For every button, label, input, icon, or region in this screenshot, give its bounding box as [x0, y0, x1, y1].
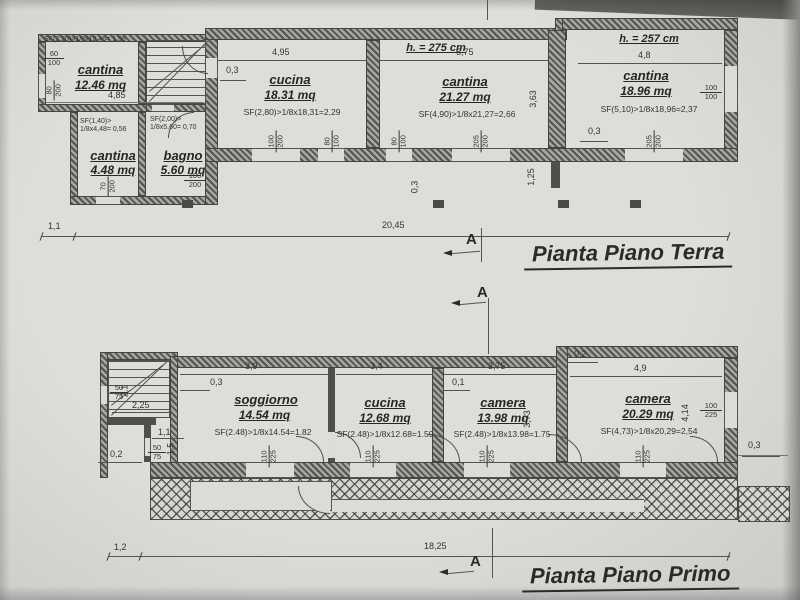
photo-edge-left [0, 0, 10, 600]
section-arrowhead [439, 569, 448, 575]
dim-line [180, 390, 210, 391]
dim-line [580, 141, 608, 142]
dim-line [152, 438, 184, 439]
dim-hall-width: 1,1 [158, 427, 171, 437]
room-area: 14.54 mq [212, 408, 317, 422]
room-formula: SF(5,10)>1/8x18,96=2,37 [588, 104, 710, 114]
room-label: cantina [415, 74, 515, 89]
room-area: 12.68 mq [340, 411, 430, 425]
door-arc [690, 436, 718, 462]
room-area: 5.60 mq [150, 163, 216, 177]
window-opening [724, 66, 738, 112]
dim-line [220, 80, 246, 81]
boundary-post [182, 200, 193, 208]
wall [548, 30, 566, 148]
dim-annex-width: 4,85 [108, 90, 126, 100]
door-arc [296, 436, 324, 462]
dim-camera-r-depth: 4,14 [680, 404, 690, 422]
room-label: soggiorno [212, 392, 320, 407]
room-area: 4.48 mq [82, 163, 144, 177]
room-formula: SF(2,80)>1/8x18,31=2,29 [228, 107, 356, 117]
dim-line [578, 63, 722, 64]
window-marker: 80200 [46, 80, 63, 100]
dim-soggiorno-width: 3,9 [245, 361, 258, 371]
wall [108, 418, 156, 425]
dim-cucina-width: 3,4 [370, 361, 383, 371]
room-area: 18.31 mq [240, 88, 340, 102]
dim-cantina-m-width: 5,75 [456, 47, 474, 57]
section-label: A [466, 231, 477, 248]
room-formula: SF(4,73)>1/8x20,29=2,54 [588, 426, 710, 436]
wall [366, 40, 380, 148]
room-height-note: h. = 257 cm [606, 33, 692, 45]
room-label: camera [458, 395, 548, 410]
dim-wall-drop: 1,25 [526, 168, 536, 186]
dim-cucina-offset: 0,3 [226, 65, 239, 75]
dim-camera-m-depth: 3,73 [522, 410, 532, 428]
room-area: 21.27 mq [415, 90, 515, 104]
wall [170, 356, 178, 478]
room-label: cantina [596, 68, 696, 83]
wall [100, 352, 108, 478]
section-line-top [487, 0, 488, 20]
boundary-post [558, 200, 569, 208]
window-marker: 5075 [110, 384, 128, 401]
dim-camera-r-offset: 0,2 [574, 349, 587, 359]
dim-line [742, 456, 780, 457]
room-formula: SF(2.48)>1/8x14.54=1.82 [200, 427, 326, 437]
window-marker: 80100 [324, 130, 341, 152]
room-formula: SF(2,20)>1/8x12,46= 1,56 [44, 36, 144, 44]
window-marker: 205200 [473, 130, 490, 152]
window-marker: 110225 [365, 445, 382, 467]
terrace-hatch-right [738, 486, 790, 522]
dim-line [180, 374, 328, 375]
floor-plan-sheet: SF(2,20)>1/8x12,46= 1,56 cantina 12.46 m… [0, 0, 800, 600]
room-area: 13.98 mq [458, 411, 548, 425]
wall [70, 196, 218, 205]
dim-wall-offset: 0,3 [409, 181, 419, 194]
dim-line [568, 362, 598, 363]
room-formula: SF(4,90)>1/8x21,27=2,66 [402, 109, 532, 119]
section-arrow-line [458, 302, 486, 305]
dim-right-offset: 0,3 [748, 440, 761, 450]
window-marker: 110225 [261, 445, 278, 467]
dim-cantina-r-offset: 0,3 [588, 126, 601, 136]
section-label: A [470, 553, 481, 570]
dim-cucina-width: 4,95 [272, 47, 290, 57]
dim-line [46, 102, 204, 103]
dim-base-total: 18,25 [424, 541, 447, 551]
wall [205, 28, 562, 40]
dim-line [218, 60, 366, 61]
dim-total: 20,45 [382, 220, 405, 230]
dim-base-left: 1,2 [114, 542, 127, 552]
window-marker: 110225 [635, 445, 652, 467]
dim-hall-depth: 1,5 [165, 443, 175, 456]
window-opening [724, 392, 738, 428]
dim-line [41, 236, 728, 237]
door-opening [152, 104, 174, 112]
dim-cantina-r-width: 4,8 [638, 50, 651, 60]
balcony-walk-strip [332, 499, 644, 512]
section-line [481, 228, 482, 262]
window-marker: 110225 [479, 445, 496, 467]
dim-camera-m-offset: 0,1 [452, 377, 465, 387]
section-label: A [477, 284, 488, 301]
room-formula: SF(2.48)>1/8x13.98=1.75 [446, 429, 558, 439]
room-formula: SF(2,00)> 1/8x5,60= 0,70 [150, 116, 210, 132]
dim-camera-m-width: 3,75 [488, 361, 506, 371]
dim-line [336, 374, 432, 375]
plan-title-terra: Pianta Piano Terra [524, 239, 733, 271]
dim-line [444, 374, 556, 375]
window-opening [100, 386, 108, 404]
dim-line [108, 556, 730, 557]
section-arrow-line [446, 571, 474, 574]
wall [562, 18, 738, 30]
window-marker: 60100 [44, 50, 64, 67]
section-arrowhead [443, 250, 452, 256]
room-area: 12.46 mq [58, 78, 143, 92]
dim-line [570, 376, 722, 377]
window-marker: 100200 [184, 172, 206, 189]
wall [100, 352, 178, 360]
dim-line [112, 412, 170, 413]
photo-edge-top [0, 0, 560, 10]
dim-left: 1,1 [48, 221, 61, 231]
section-line [492, 528, 493, 578]
boundary-post [630, 200, 641, 208]
room-formula: SF(2.48)>1/8x12.68=1.59 [332, 429, 438, 439]
door-opening [96, 196, 120, 205]
dim-camera-r-width: 4,9 [634, 363, 647, 373]
dim-line [380, 60, 548, 61]
wall-stub [551, 162, 560, 188]
room-label: bagno [150, 148, 216, 163]
dim-soggiorno-offset: 0,3 [210, 377, 223, 387]
dim-line [444, 390, 470, 391]
window-marker: 205200 [646, 130, 663, 152]
dim-cantina-m-depth: 3,63 [528, 90, 538, 108]
window-marker: 100200 [268, 130, 285, 152]
section-arrowhead [451, 300, 460, 306]
room-formula: SF(1,40)> 1/8x4,48= 0,56 [80, 118, 138, 134]
dim-line [98, 462, 142, 463]
section-line [488, 298, 489, 354]
window-marker: 100225 [700, 402, 722, 419]
window-marker: 80100 [391, 130, 408, 152]
wall [38, 104, 148, 112]
room-area: 18.96 mq [596, 84, 696, 98]
room-label: cantina [58, 62, 143, 77]
room-label: cucina [240, 72, 340, 87]
window-marker: 5075 [148, 444, 166, 461]
plan-title-primo: Pianta Piano Primo [522, 560, 739, 592]
boundary-post [433, 200, 444, 208]
room-label: cucina [340, 395, 430, 410]
window-marker: 100100 [700, 84, 722, 101]
dim-entry-offset: 0,2 [110, 449, 123, 459]
window-marker: 70200 [100, 176, 117, 196]
dim-stair-width: 2,25 [132, 400, 150, 410]
section-arrow-line [450, 251, 480, 255]
wall [70, 112, 78, 200]
room-label: cantina [82, 148, 144, 163]
